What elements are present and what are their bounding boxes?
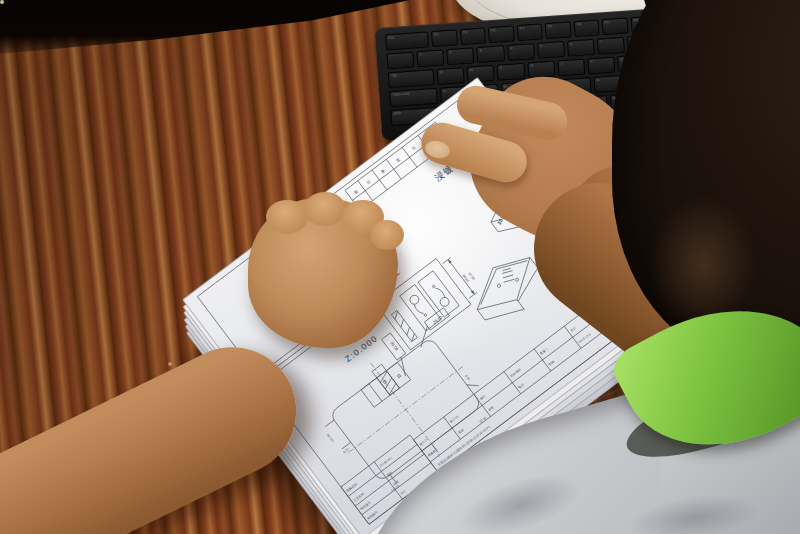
keyboard-key: ` xyxy=(386,51,414,69)
dim-label: 9.00 xyxy=(342,447,350,454)
keyboard-key: F5 xyxy=(545,21,572,39)
tb-cell: 材质: xyxy=(487,405,496,413)
rev-cell: 次 xyxy=(365,179,371,185)
keyboard-key: F4 xyxy=(516,23,543,41)
photo-scene: EscF1F2F3F4F5F6F7F8F9F10F11F12`123456789… xyxy=(0,0,800,534)
tb-cell: 数量:1 xyxy=(539,347,549,356)
keyboard-key: 5 xyxy=(537,41,565,59)
tb-cell: 粗:0.2 xyxy=(419,438,428,446)
keyboard-key: Y xyxy=(587,56,615,74)
desk-crumbs xyxy=(0,0,4,4)
knuckle xyxy=(266,200,308,234)
rev-cell: 改 xyxy=(395,157,401,163)
keyboard-key: F6 xyxy=(573,19,600,37)
keyboard-key: Esc xyxy=(385,31,429,50)
rev-cell: 更 xyxy=(380,168,386,174)
tb-cell: A01 xyxy=(400,489,407,496)
tb-cell: 审核: xyxy=(548,359,556,366)
knuckle xyxy=(304,192,346,226)
tb-cell: 设计: xyxy=(569,325,577,332)
tb-cell: 编号: xyxy=(479,394,487,401)
keyboard-key: 1 xyxy=(416,49,444,67)
dim-box-60 xyxy=(379,333,416,376)
keyboard-key: 2 xyxy=(447,47,475,65)
dim-box-label: 26.00 xyxy=(432,314,444,325)
tb-cell: 品名 xyxy=(393,479,400,486)
keyboard-key: 7 xyxy=(597,37,625,55)
rev-cell: 版 xyxy=(353,188,359,194)
keyboard-key: 4 xyxy=(507,43,535,61)
tb-cell: 图档编号: xyxy=(366,510,379,521)
keyboard-key: F2 xyxy=(459,27,486,45)
tb-cell: 20188-A01 xyxy=(379,455,394,467)
keyboard-key: 6 xyxy=(567,39,595,57)
keyboard-key: F1 xyxy=(431,29,458,47)
dim-box-label: 60.50 xyxy=(389,340,400,352)
tb-cell: 基准: xyxy=(457,427,465,434)
keyboard-key: F3 xyxy=(488,25,515,43)
dim-label: 50.8 xyxy=(464,374,471,382)
keyboard-key: T xyxy=(557,59,585,77)
left-fist xyxy=(248,198,398,348)
tb-cell: 工艺名称: xyxy=(353,491,366,502)
keyboard-key: 3 xyxy=(477,45,505,63)
knuckle xyxy=(370,220,404,250)
keyboard-key: F7 xyxy=(602,17,629,35)
tb-cell: 电极名称: xyxy=(346,482,359,493)
dim-label: 115.00 xyxy=(326,433,335,443)
tb-cell: 精:0.05 xyxy=(449,414,460,423)
tb-cell: 备注: xyxy=(518,382,526,389)
